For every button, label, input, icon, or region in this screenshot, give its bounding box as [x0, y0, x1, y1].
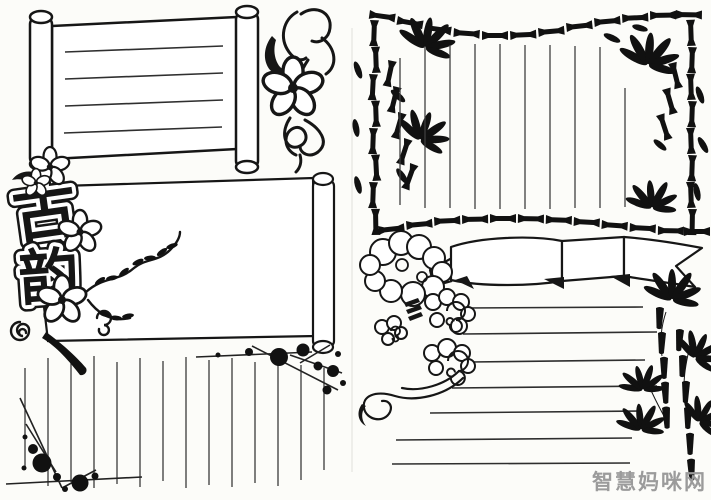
bamboo-border-frame — [351, 10, 710, 236]
scanned-template-sheet: 古 古 古 韵 韵 韵 — [0, 0, 711, 500]
ribbon-middle-face — [562, 237, 624, 281]
bamboo-leaves-icon — [669, 326, 711, 375]
ink-splatter-branch-icon — [6, 398, 142, 492]
scroll-roller-right-icon — [236, 6, 258, 173]
bamboo-plant-icon — [611, 263, 711, 481]
scroll-roller-right-icon — [313, 173, 334, 353]
bamboo-leaves-icon — [675, 391, 711, 441]
bamboo-leaves-icon — [611, 397, 669, 446]
template-artwork: 古 古 古 韵 韵 韵 — [0, 0, 711, 500]
scroll-paper — [52, 17, 237, 159]
bamboo-leaves-icon — [616, 29, 682, 81]
ribbon-right-face — [624, 237, 702, 287]
bamboo-leaves-icon — [621, 173, 683, 225]
watermark: 智慧妈咪网 — [592, 466, 707, 496]
vertical-writing-lines — [25, 356, 324, 488]
